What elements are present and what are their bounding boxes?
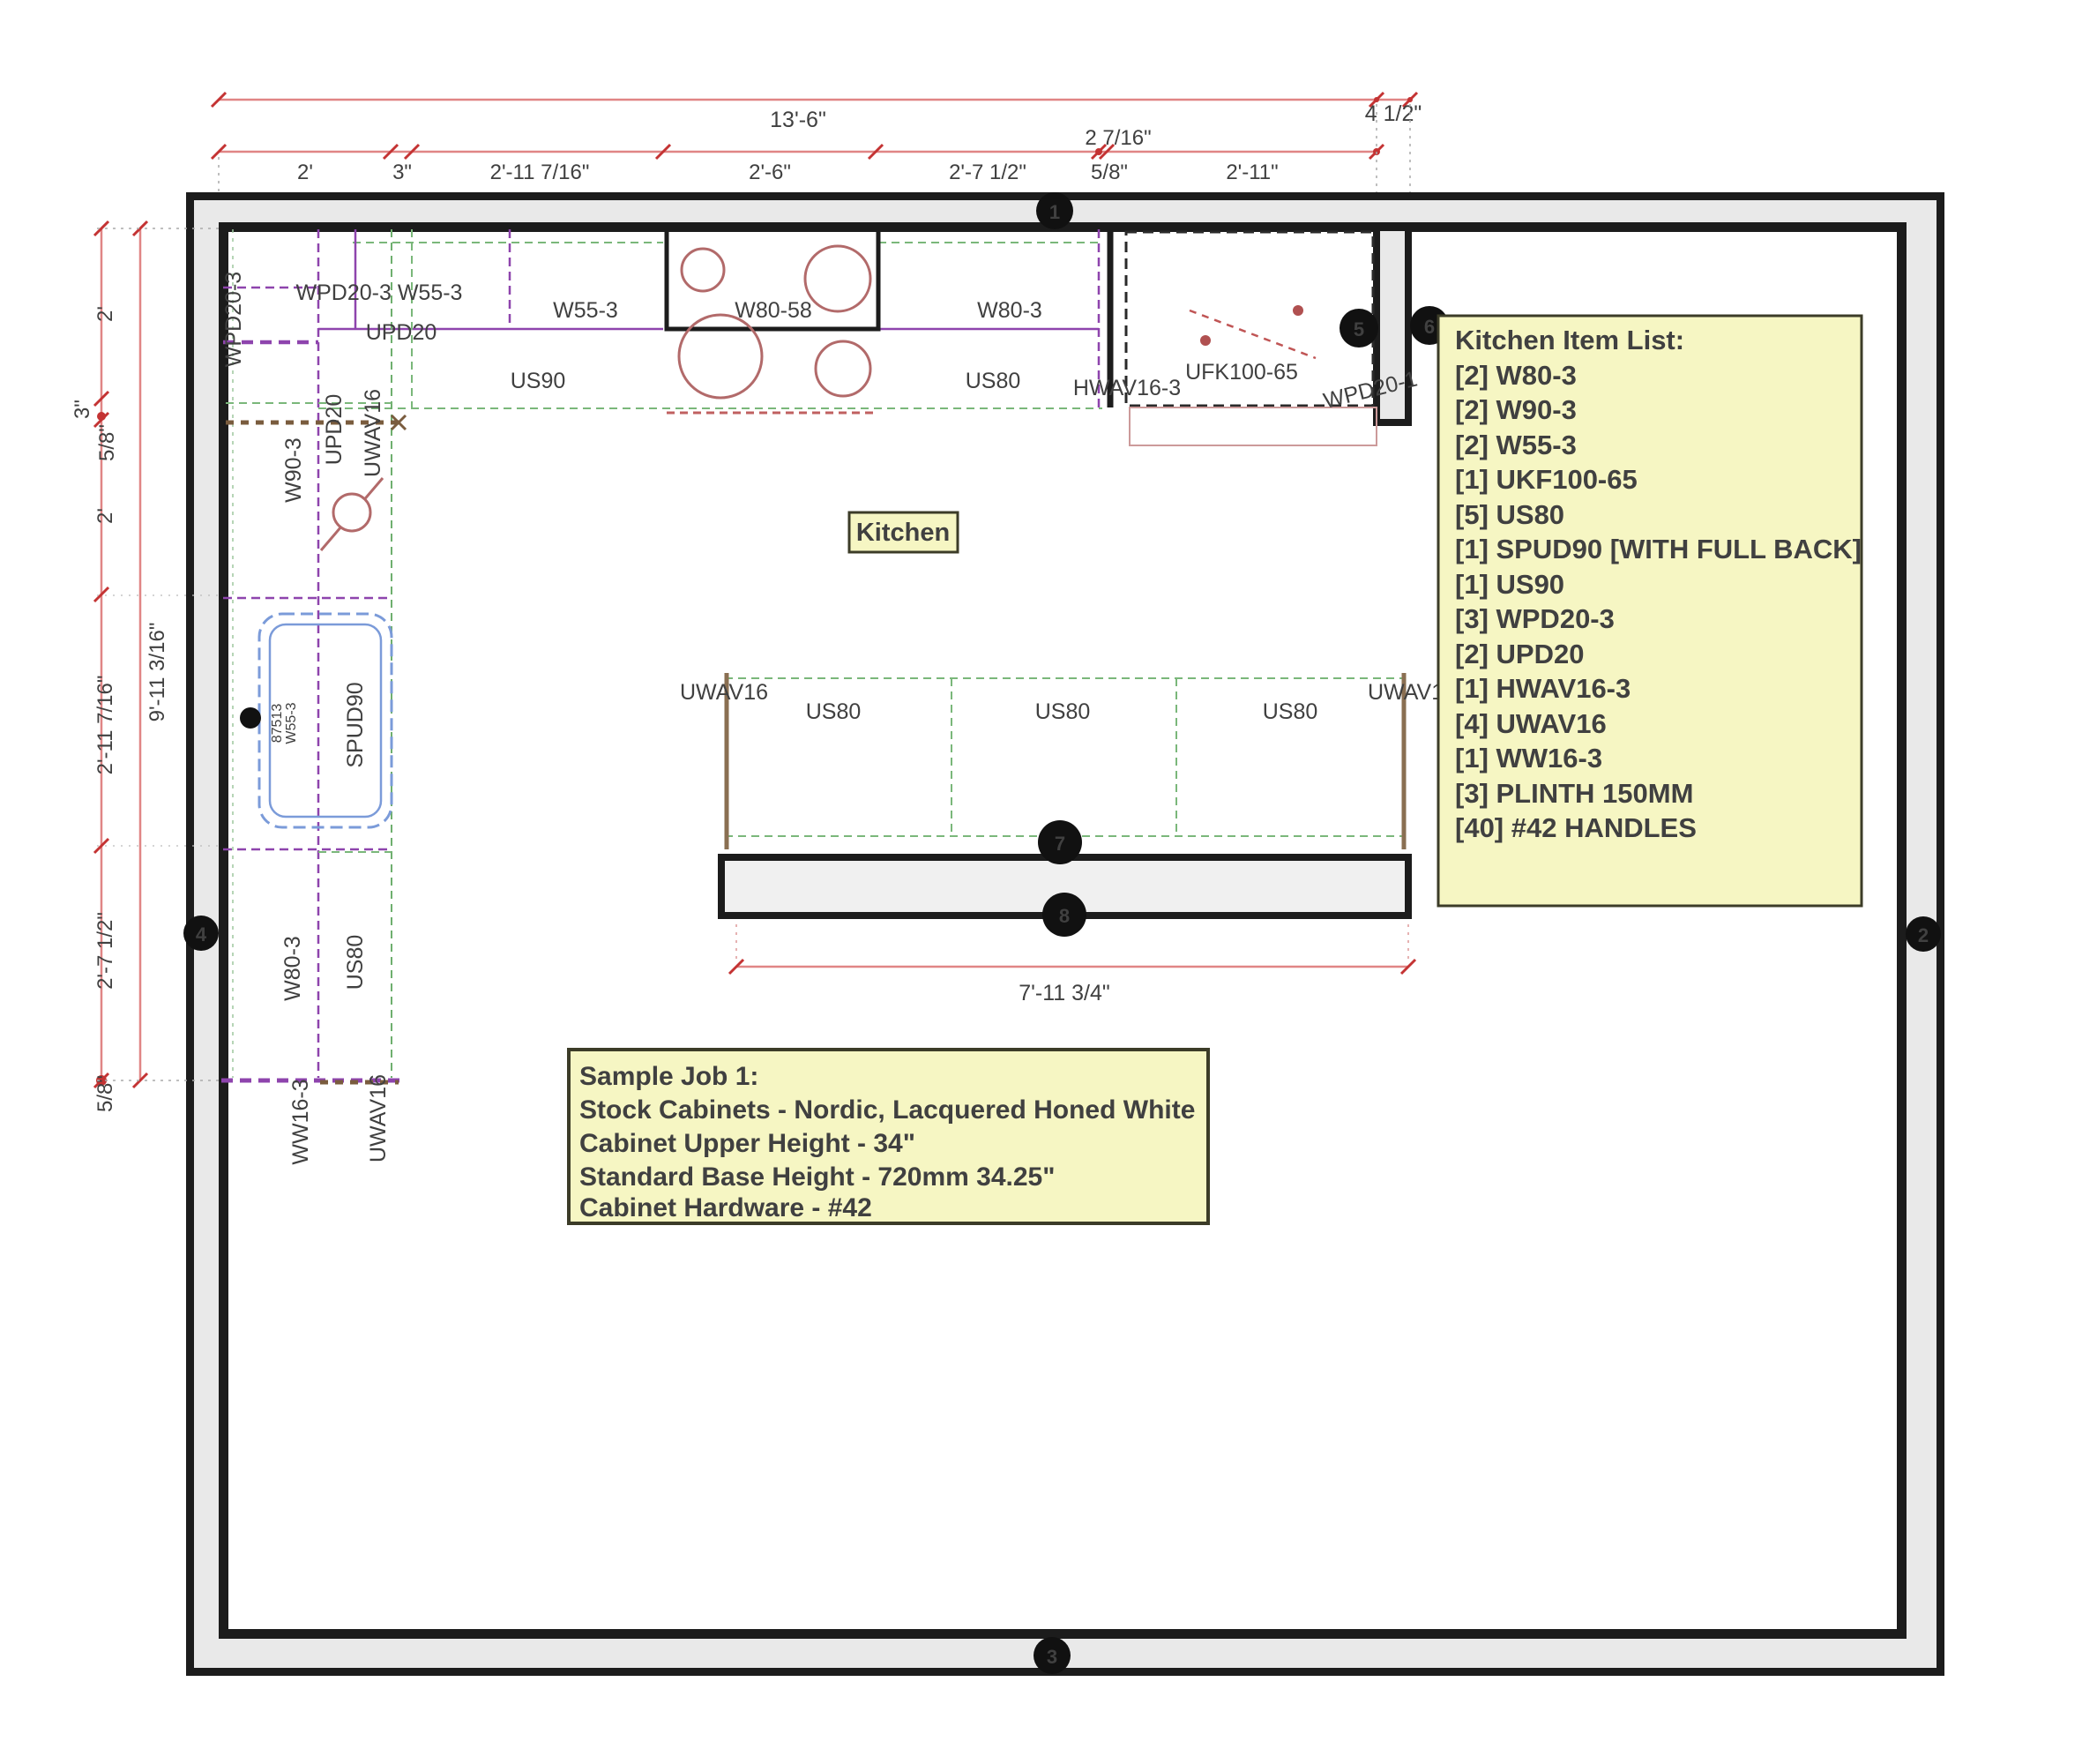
- svg-text:2 7/16": 2 7/16": [1085, 126, 1151, 150]
- svg-text:US80: US80: [966, 369, 1021, 393]
- svg-text:3": 3": [71, 400, 94, 419]
- svg-text:2'-7 1/2": 2'-7 1/2": [949, 161, 1026, 184]
- svg-text:7'-11 3/4": 7'-11 3/4": [1019, 981, 1110, 1005]
- svg-text:[1] WW16-3: [1] WW16-3: [1455, 743, 1602, 774]
- svg-text:W80-58: W80-58: [735, 298, 812, 323]
- svg-text:[2] W90-3: [2] W90-3: [1455, 394, 1577, 425]
- svg-text:13'-6": 13'-6": [770, 108, 826, 132]
- svg-text:Cabinet Upper Height - 34": Cabinet Upper Height - 34": [579, 1129, 915, 1158]
- svg-text:[1] UKF100-65: [1] UKF100-65: [1455, 464, 1638, 495]
- svg-text:WPD20-3 W55-3: WPD20-3 W55-3: [296, 280, 463, 305]
- svg-text:3: 3: [1047, 1646, 1057, 1668]
- svg-text:2: 2: [1918, 924, 1929, 946]
- svg-text:US80: US80: [1035, 699, 1091, 724]
- svg-text:[1] HWAV16-3: [1] HWAV16-3: [1455, 673, 1631, 704]
- svg-text:8: 8: [1059, 905, 1070, 927]
- svg-text:UWAV16: UWAV16: [361, 389, 385, 477]
- svg-text:2'-11 7/16": 2'-11 7/16": [93, 676, 117, 775]
- svg-text:87513: 87513: [270, 704, 285, 744]
- svg-text:W80-3: W80-3: [280, 936, 305, 1001]
- svg-text:2': 2': [93, 306, 117, 322]
- svg-text:[1] US90: [1] US90: [1455, 569, 1564, 600]
- svg-text:Kitchen: Kitchen: [856, 519, 950, 547]
- svg-text:W55-3: W55-3: [553, 298, 618, 323]
- svg-text:UWAV16: UWAV16: [680, 680, 768, 705]
- svg-text:US90: US90: [511, 369, 566, 393]
- svg-text:2'-11": 2'-11": [1226, 161, 1278, 184]
- svg-text:2': 2': [93, 508, 117, 524]
- svg-text:US80: US80: [806, 699, 862, 724]
- svg-text:Stock Cabinets - Nordic, Lacqu: Stock Cabinets - Nordic, Lacquered Honed…: [579, 1095, 1195, 1125]
- svg-text:7: 7: [1055, 833, 1065, 855]
- svg-text:2': 2': [297, 161, 313, 184]
- svg-text:[3] WPD20-3: [3] WPD20-3: [1455, 603, 1615, 634]
- svg-text:UWAV16: UWAV16: [366, 1074, 391, 1162]
- svg-text:UPD20: UPD20: [366, 320, 437, 345]
- svg-text:WW16-3: WW16-3: [288, 1079, 313, 1164]
- svg-text:[3] PLINTH 150MM: [3] PLINTH 150MM: [1455, 778, 1693, 809]
- svg-text:1: 1: [1049, 201, 1060, 223]
- svg-text:HWAV16-3: HWAV16-3: [1073, 376, 1181, 400]
- svg-text:2'-7 1/2": 2'-7 1/2": [93, 912, 117, 990]
- svg-text:5/8": 5/8": [95, 424, 119, 461]
- svg-text:W80-3: W80-3: [977, 298, 1042, 323]
- svg-text:[5] US80: [5] US80: [1455, 499, 1564, 530]
- svg-text:[2] W80-3: [2] W80-3: [1455, 360, 1577, 391]
- svg-text:Cabinet Hardware - #42: Cabinet Hardware - #42: [579, 1193, 872, 1222]
- svg-text:[2] UPD20: [2] UPD20: [1455, 639, 1584, 669]
- svg-text:UFK100-65: UFK100-65: [1185, 360, 1298, 385]
- svg-text:[4] UWAV16: [4] UWAV16: [1455, 708, 1607, 739]
- svg-text:4 1/2": 4 1/2": [1365, 101, 1422, 126]
- svg-text:[2] W55-3: [2] W55-3: [1455, 430, 1577, 460]
- svg-text:W90-3: W90-3: [281, 437, 306, 503]
- svg-text:UPD20: UPD20: [322, 394, 347, 466]
- svg-text:Sample Job 1:: Sample Job 1:: [579, 1062, 758, 1091]
- svg-text:5/8": 5/8": [1091, 161, 1128, 184]
- svg-text:US80: US80: [1263, 699, 1318, 724]
- svg-text:SPUD90: SPUD90: [343, 682, 368, 767]
- svg-text:9'-11 3/16": 9'-11 3/16": [146, 623, 169, 722]
- svg-text:WPD20-3: WPD20-3: [221, 272, 246, 367]
- svg-text:6: 6: [1424, 316, 1435, 338]
- svg-text:Kitchen Item List:: Kitchen Item List:: [1455, 325, 1684, 355]
- svg-text:[40] #42 HANDLES: [40] #42 HANDLES: [1455, 812, 1697, 843]
- svg-text:2'-11 7/16": 2'-11 7/16": [490, 161, 590, 184]
- svg-text:Standard Base Height - 720mm 3: Standard Base Height - 720mm 34.25": [579, 1162, 1055, 1192]
- svg-text:4: 4: [196, 923, 207, 946]
- svg-text:W55-3: W55-3: [284, 702, 299, 744]
- svg-text:[1] SPUD90 [WITH FULL BACK]: [1] SPUD90 [WITH FULL BACK]: [1455, 534, 1862, 564]
- svg-text:5: 5: [1354, 318, 1364, 340]
- svg-text:US80: US80: [343, 935, 368, 990]
- svg-text:2'-6": 2'-6": [749, 161, 791, 184]
- svg-text:3": 3": [392, 161, 412, 184]
